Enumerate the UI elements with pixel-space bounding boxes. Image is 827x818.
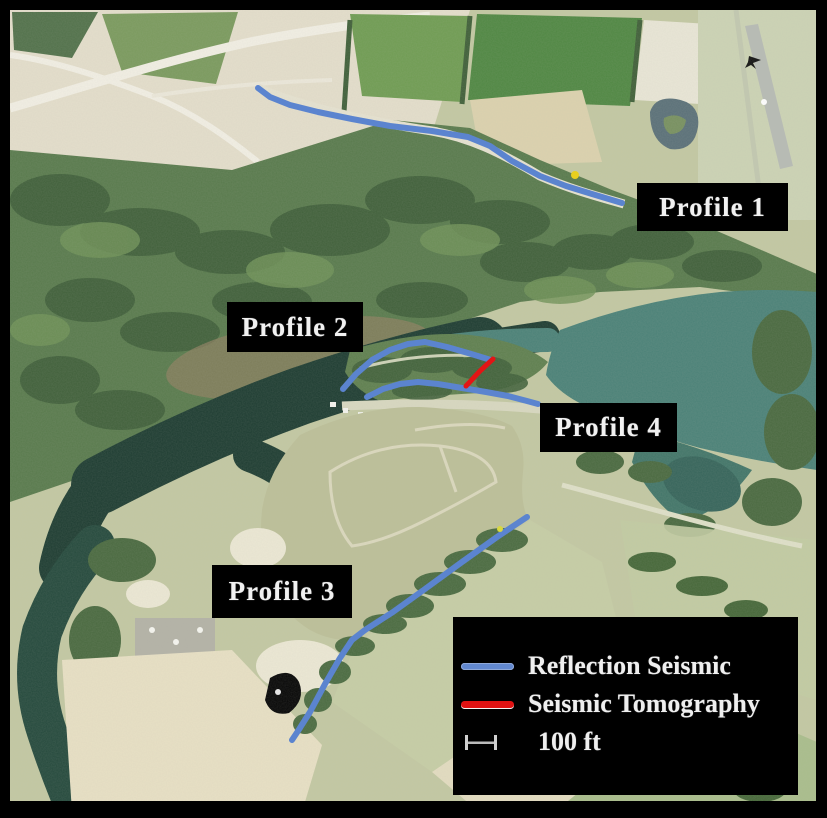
profile-4-label: Profile 4 xyxy=(540,403,677,452)
seismic-survey-map-figure: Profile 1 Profile 2 Profile 4 Profile 3 … xyxy=(0,0,827,818)
blue-line-swatch xyxy=(461,663,514,670)
legend-row-reflection-seismic: Reflection Seismic xyxy=(461,647,798,685)
tomography-line xyxy=(466,359,493,386)
scale-bar xyxy=(465,735,497,750)
yellow-dot-profile1 xyxy=(571,171,579,179)
profile-1-line xyxy=(258,88,622,203)
scale-bar-label: 100 ft xyxy=(538,727,601,757)
map-legend: Reflection Seismic Seismic Tomography 10… xyxy=(453,617,798,795)
legend-row-seismic-tomography: Seismic Tomography xyxy=(461,685,798,723)
legend-row-scale-bar: 100 ft xyxy=(461,723,798,761)
profile-1-label: Profile 1 xyxy=(637,183,788,231)
yellow-dot-profile3 xyxy=(497,526,503,532)
legend-label: Seismic Tomography xyxy=(528,689,760,719)
red-line-swatch xyxy=(461,701,514,708)
legend-label: Reflection Seismic xyxy=(528,651,731,681)
profile-4-line xyxy=(367,382,538,404)
profile-2-label: Profile 2 xyxy=(227,302,363,352)
profile-3-label: Profile 3 xyxy=(212,565,352,618)
